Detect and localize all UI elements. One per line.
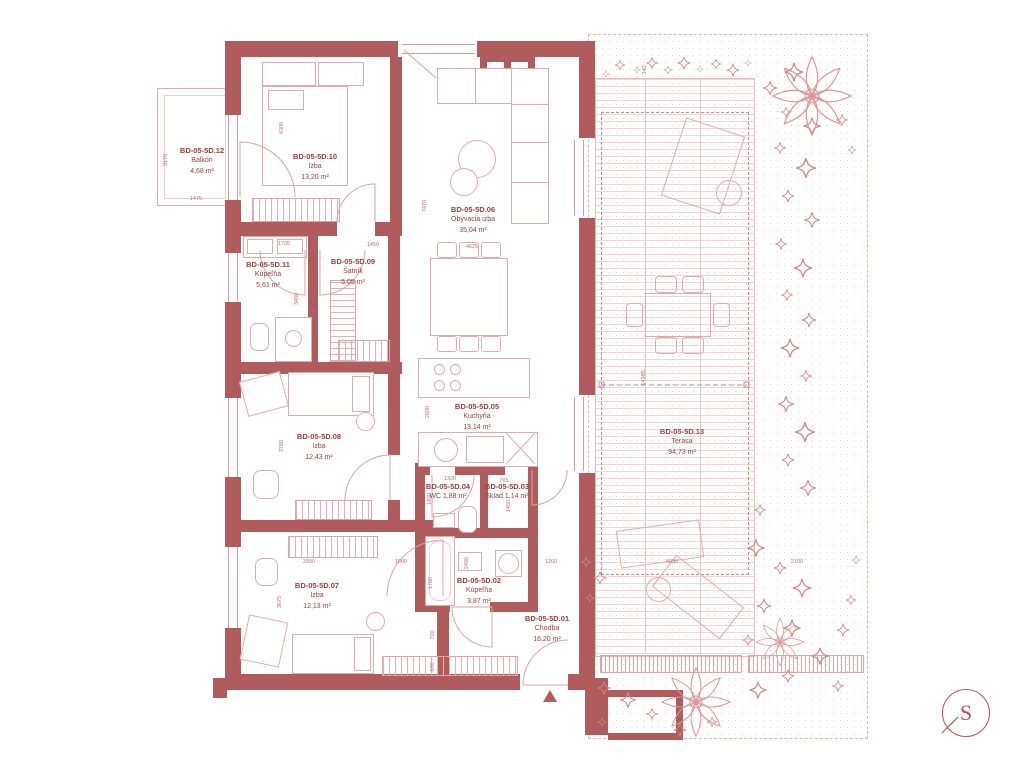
cooktop-burner	[434, 364, 445, 375]
sofa	[511, 142, 549, 184]
wall	[225, 477, 241, 547]
wall	[579, 218, 595, 395]
dimension-label: 1320	[444, 476, 456, 482]
dimension-label: 1700	[428, 577, 434, 589]
washing-machine-drum	[498, 553, 519, 574]
headboard-cabinet	[262, 62, 316, 86]
floor-plan: BD-05-5D.12Balkón4,68 m² BD-05-5D.10Izba…	[0, 0, 1024, 768]
sink	[433, 513, 455, 528]
wall	[477, 41, 595, 57]
wall	[225, 41, 398, 57]
toilet	[458, 506, 477, 533]
pillow	[268, 90, 304, 110]
wardrobe	[252, 198, 340, 222]
room-label-izba08: BD-05-5D.08Izba12,43 m²	[297, 431, 341, 463]
chair	[481, 242, 501, 258]
terrace-sliding-door	[574, 397, 584, 471]
wall	[390, 57, 402, 222]
sofa	[475, 68, 512, 104]
room-label-chodba: BD-05-5D.01Chodba16,20 m²	[525, 613, 569, 645]
dimension-label: 1475	[190, 196, 202, 202]
dimension-label: 4090	[666, 559, 678, 565]
dimension-label: 1450	[367, 242, 379, 248]
entry-wall-l	[608, 690, 683, 740]
outdoor-chair	[655, 337, 677, 354]
sofa	[437, 68, 476, 104]
window	[228, 253, 238, 302]
dimension-label: 3480	[294, 293, 300, 305]
dimension-label: 2600	[425, 406, 431, 418]
grass-strip	[748, 655, 864, 673]
room-label-kuchyna: BD-05-5D.05Kuchyňa13,14 m²	[455, 401, 499, 433]
wall	[213, 678, 227, 698]
side-table	[716, 180, 742, 206]
window	[228, 547, 238, 628]
sofa	[511, 182, 549, 224]
dimension-label: 4300	[279, 122, 285, 134]
wall	[225, 222, 337, 236]
room-label-izba10: BD-05-5D.10Izba13,20 m²	[293, 151, 337, 183]
outdoor-chair	[626, 303, 643, 327]
dimension-label: 1450	[427, 493, 433, 505]
room-label-terasa: BD-05-5D.13Terasa94,73 m²	[660, 426, 704, 458]
dimension-label: 1735	[278, 241, 290, 247]
dimension-label: 7470	[422, 200, 428, 212]
armchair	[239, 371, 289, 417]
compass-north-letter: S	[960, 700, 972, 726]
dimension-label: 1000	[395, 559, 407, 565]
wall	[388, 500, 400, 520]
room-label-kupelna11: BD-05-5D.11Kúpeľňa5,61 m²	[246, 259, 290, 291]
wall	[388, 374, 400, 455]
sink	[247, 239, 273, 254]
dimension-label: 3675	[277, 596, 283, 608]
dimension-label: 1450	[506, 500, 512, 512]
outdoor-table	[645, 293, 711, 337]
wardrobe	[288, 536, 378, 558]
dimension-label: 14385	[641, 370, 647, 385]
kitchen-cabinet	[466, 436, 504, 463]
chair	[481, 336, 501, 352]
shower-drain	[285, 330, 302, 347]
cooktop-burner	[450, 380, 461, 391]
wall	[528, 463, 538, 612]
dimension-label: 600	[430, 662, 436, 671]
sink	[255, 558, 278, 586]
sink	[458, 552, 482, 571]
side-table	[356, 412, 375, 431]
kitchen-island	[418, 358, 530, 398]
dimension-label: 3765	[279, 440, 285, 452]
wall	[579, 473, 595, 690]
dimension-label: 3300	[303, 559, 315, 565]
sofa	[511, 104, 549, 144]
wall	[579, 41, 595, 138]
entrance-direction-icon	[543, 690, 557, 702]
chair	[459, 336, 479, 352]
dimension-label: 2400	[464, 557, 470, 569]
chair	[437, 242, 457, 258]
compass: S	[942, 689, 990, 737]
dining-table	[430, 258, 508, 336]
toilet	[250, 323, 269, 351]
dimension-label: 3170	[163, 154, 169, 166]
room-label-kupelna02: BD-05-5D.02Kúpeľňa3,87 m²	[457, 575, 501, 607]
outdoor-chair	[682, 337, 704, 354]
dimension-label: 2100	[791, 559, 803, 565]
pillow	[352, 376, 370, 412]
side-table	[646, 577, 671, 602]
dimension-label: 700	[430, 630, 436, 639]
outdoor-chair	[713, 303, 730, 327]
grass-strip	[600, 655, 742, 673]
cooktop-burner	[434, 380, 445, 391]
wall	[375, 222, 402, 236]
dimension-label: 765	[499, 478, 508, 484]
window	[228, 398, 238, 477]
wall	[225, 674, 520, 690]
bathtub-inner	[429, 541, 451, 601]
window	[402, 44, 475, 54]
dimension-label: 340	[642, 65, 648, 74]
armchair	[240, 614, 289, 667]
coffee-table	[450, 168, 478, 196]
outdoor-chair	[655, 276, 677, 293]
wall	[415, 463, 425, 612]
terrace-sliding-door	[574, 140, 584, 216]
pillow	[354, 637, 371, 671]
room-label-satnik: BD-05-5D.09Šatník5,05 m²	[331, 256, 375, 288]
kitchen-sink	[434, 438, 458, 462]
side-table	[366, 612, 385, 631]
chair	[253, 470, 279, 499]
cooktop-burner	[450, 364, 461, 375]
outdoor-chair	[682, 276, 704, 293]
room-label-izba07: BD-05-5D.07Izba12,13 m²	[295, 580, 339, 612]
room-label-obyvacia: BD-05-5D.06Obývacia izba35,04 m²	[451, 204, 495, 236]
wardrobe	[295, 500, 372, 520]
wardrobe	[338, 340, 390, 362]
wall	[585, 678, 608, 735]
balcony-door-window	[228, 115, 238, 200]
room-label-balkon: BD-05-5D.12Balkón4,68 m²	[180, 145, 224, 177]
chair	[437, 336, 457, 352]
dimension-label: 4625	[466, 244, 478, 250]
dimension-label: 1200	[545, 559, 557, 565]
wall	[225, 41, 241, 115]
sofa	[511, 68, 549, 106]
wardrobe	[382, 656, 518, 676]
headboard-cabinet	[318, 62, 364, 86]
